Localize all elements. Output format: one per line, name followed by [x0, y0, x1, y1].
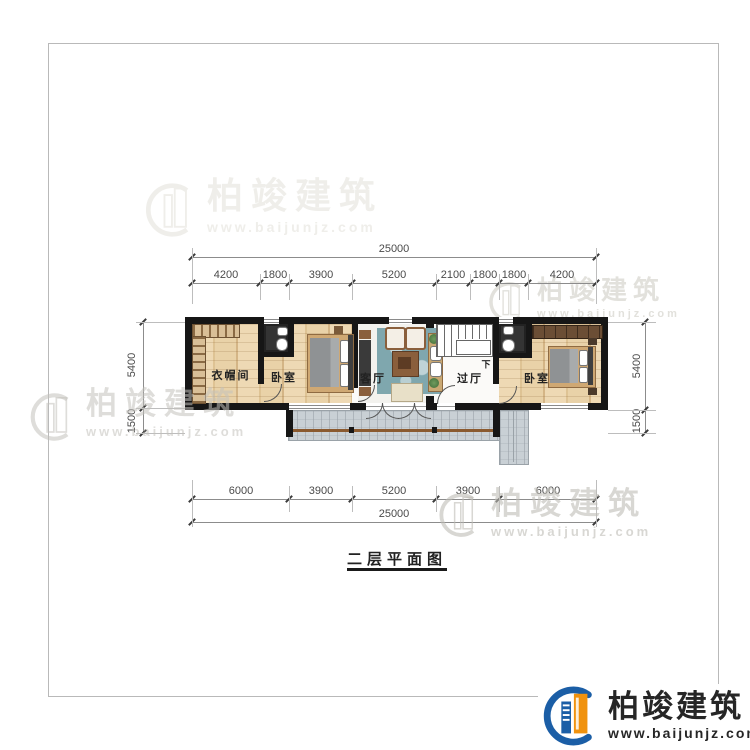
witness-line	[260, 274, 261, 300]
dim-top-seg: 3900	[309, 269, 333, 281]
witness-line	[352, 274, 353, 300]
witness-line	[289, 486, 290, 512]
dim-line	[192, 257, 596, 258]
dim-top-seg: 1800	[263, 269, 287, 281]
dim-top-seg: 4200	[550, 269, 574, 281]
witness-line	[608, 322, 656, 323]
witness-line	[352, 486, 353, 512]
dim-bottom-seg: 3900	[309, 485, 333, 497]
dim-line	[192, 499, 596, 500]
dim-left-seg: 5400	[126, 353, 138, 377]
witness-line	[436, 486, 437, 512]
witness-line	[192, 248, 193, 304]
dim-top-seg: 1800	[502, 269, 526, 281]
dim-top-total: 25000	[379, 243, 410, 255]
dim-bottom-seg: 6000	[229, 485, 253, 497]
brand-url: www.baijunjz.com	[608, 725, 750, 741]
dim-bottom-seg: 6000	[536, 485, 560, 497]
floor-plan-sheet: 柏竣建筑 www.baijunjz.com 柏竣建筑 www.baijunjz.…	[0, 0, 750, 750]
dim-left-seg: 1500	[126, 409, 138, 433]
dim-top-seg: 5200	[382, 269, 406, 281]
dim-right-seg: 5400	[631, 354, 643, 378]
witness-line	[436, 274, 437, 300]
witness-line	[499, 486, 500, 512]
dim-top-seg: 4200	[214, 269, 238, 281]
witness-line	[528, 274, 529, 300]
dim-line	[192, 283, 596, 284]
dim-bottom-seg: 3900	[456, 485, 480, 497]
witness-line	[289, 274, 290, 300]
dim-line	[192, 522, 596, 523]
witness-line	[136, 433, 185, 434]
brand-logo-icon	[542, 686, 600, 746]
brand-logo: 柏竣建筑 www.baijunjz.com	[538, 684, 750, 748]
witness-line	[596, 248, 597, 304]
drawing-title: 二层平面图	[347, 548, 447, 569]
witness-line	[192, 480, 193, 527]
witness-line	[136, 322, 185, 323]
dim-bottom-total: 25000	[379, 508, 410, 520]
witness-line	[608, 433, 656, 434]
dimension-layer: 25000 4200 1800 3900 5200 2100 1800 1800…	[0, 0, 750, 750]
dim-line	[645, 322, 646, 433]
dim-bottom-seg: 5200	[382, 485, 406, 497]
witness-line	[596, 480, 597, 527]
title-underline	[347, 568, 447, 571]
witness-line	[499, 274, 500, 300]
brand-name: 柏竣建筑	[608, 691, 750, 722]
dim-line	[143, 322, 144, 433]
witness-line	[608, 410, 656, 411]
witness-line	[136, 408, 185, 409]
dim-top-seg: 2100	[441, 269, 465, 281]
witness-line	[470, 274, 471, 300]
dim-top-seg: 1800	[473, 269, 497, 281]
